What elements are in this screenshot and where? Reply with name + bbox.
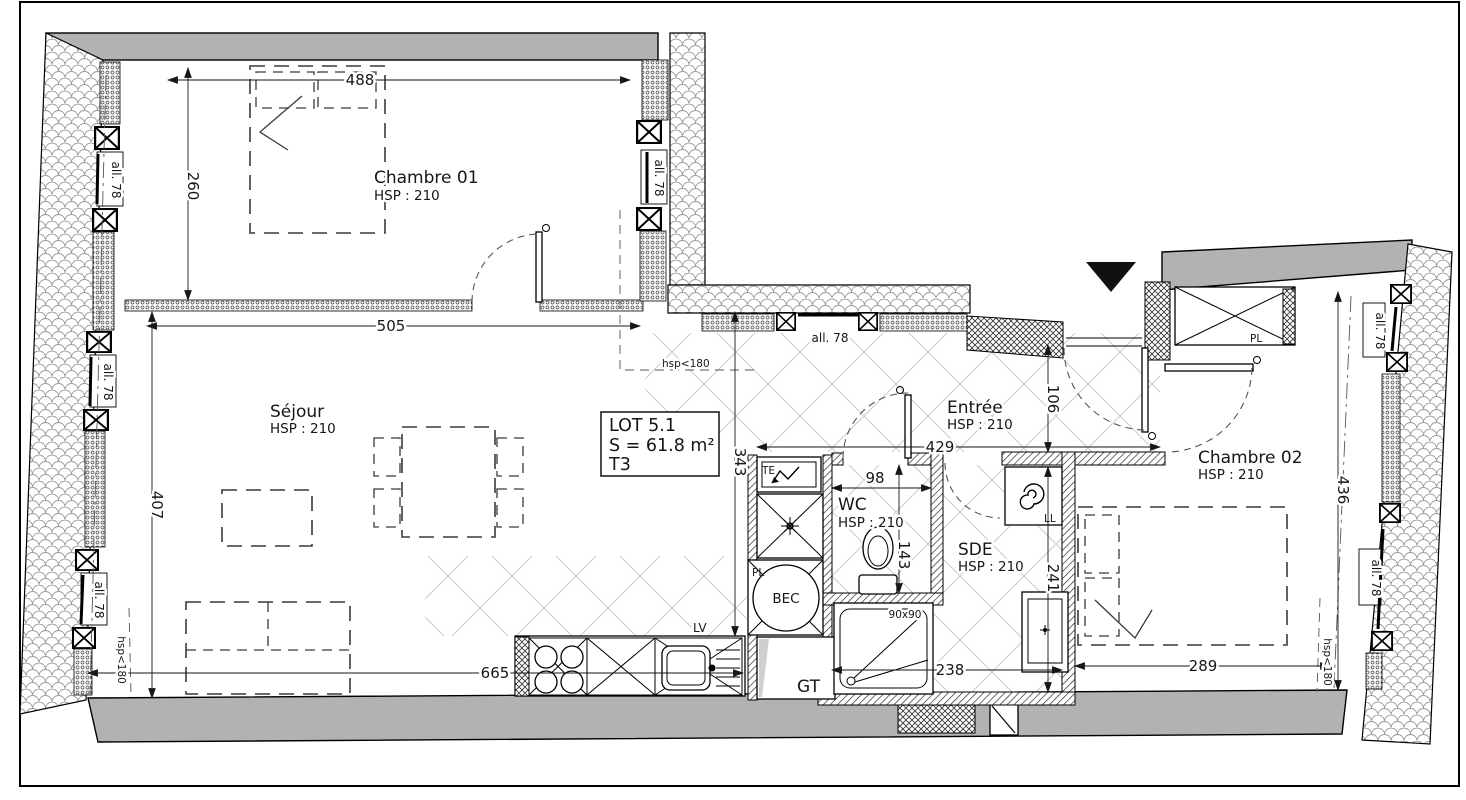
pillow: [1085, 515, 1119, 573]
kitchen-end-cap: [515, 637, 529, 696]
room-name-sde: SDE: [958, 540, 993, 560]
kitchen-counter: [515, 636, 745, 696]
lot-type: T3: [608, 455, 631, 475]
dim-sejour-width: 505: [377, 317, 406, 335]
room-hsp-sejour: HSP : 210: [270, 421, 336, 437]
window-jamb-icon: [1372, 632, 1392, 650]
door-chambre01: [472, 225, 550, 303]
coffee-table: [222, 490, 312, 546]
bed-chambre01: [250, 66, 385, 233]
dining-table: [374, 427, 523, 537]
sde-north-wall: [1002, 452, 1165, 465]
dim-sejour-interior: 343: [731, 448, 749, 477]
exterior-wall-notch-horizontal: [668, 285, 970, 313]
label-hsp180: hsp<180: [662, 358, 710, 370]
label-hsp180: hsp<180: [115, 636, 127, 684]
window-allege-label: all. 78: [92, 582, 106, 619]
party-wall-bottom: [88, 690, 1347, 742]
door-leaf: [536, 232, 542, 302]
door-leaf: [1142, 348, 1148, 432]
dim-chambre02-depth: 436: [1334, 476, 1352, 505]
room-hsp-wc: HSP : 210: [838, 515, 904, 531]
door-leaf: [905, 395, 911, 458]
room-hsp-sde: HSP : 210: [958, 559, 1024, 575]
chair: [497, 489, 523, 527]
label-bec: BEC: [772, 591, 799, 607]
exterior-wall-notch-vertical: [670, 33, 705, 285]
door-chambre02: [1165, 357, 1261, 453]
wall-chambre01-sejour: [125, 300, 472, 311]
wc-top-wall-stub-left: [832, 453, 843, 465]
room-name-entree: Entrée: [947, 398, 1003, 418]
window-allege-label: all. 78: [812, 331, 849, 345]
door-handle-icon: [543, 225, 550, 232]
room-name-wc: WC: [838, 495, 867, 515]
blanket-fold: [260, 96, 302, 150]
label-pl: PL: [752, 567, 764, 579]
dim-sejour-depth: 407: [148, 491, 166, 520]
party-wall-top-right: [1162, 240, 1412, 290]
wall-chambre01-east-lower: [640, 231, 666, 301]
room-hsp-entree: HSP : 210: [947, 417, 1013, 433]
label-hsp180: hsp<180: [1321, 638, 1333, 686]
window-allege-label: all. 78: [652, 160, 666, 197]
dim-entree-width: 429: [926, 438, 955, 456]
window-jamb-icon: [859, 313, 877, 330]
label-gt: GT: [797, 677, 821, 697]
vent-shaft-box: [757, 494, 823, 558]
room-name-sejour: Séjour: [270, 402, 324, 422]
closet-chambre02: [1175, 287, 1295, 345]
dim-sde-depth: 241: [1044, 564, 1062, 593]
wall-chambre01-east-upper: [642, 60, 668, 120]
label-lv: LV: [693, 621, 707, 635]
label-ll: LL: [1044, 513, 1056, 525]
dim-sde-width: 238: [936, 661, 965, 679]
lot-info-box: LOT 5.1 S = 61.8 m² T3: [601, 412, 719, 476]
sofa: [186, 602, 350, 694]
window-jamb-icon: [95, 127, 119, 149]
wc-east-wall: [931, 453, 943, 605]
window-jamb-icon: [777, 313, 795, 330]
window-jamb-icon: [84, 410, 108, 430]
chair: [374, 438, 400, 476]
door-leaf: [1165, 364, 1253, 371]
room-hsp-chambre01: HSP : 210: [374, 188, 440, 204]
window-jamb-icon: [1380, 504, 1400, 522]
room-name-chambre01: Chambre 01: [374, 168, 479, 188]
closet-end-cap: [1283, 289, 1295, 344]
window-jamb-icon: [1391, 285, 1411, 303]
entrance-arrow-icon: [1086, 262, 1136, 292]
bed-chambre02: [1078, 507, 1287, 645]
blanket-fold: [1095, 600, 1152, 638]
window-jamb-icon: [637, 208, 661, 230]
window-jamb-icon: [93, 209, 117, 231]
room-name-chambre02: Chambre 02: [1198, 448, 1303, 468]
window-jamb-icon: [76, 550, 98, 570]
window-allege-label: all. 78: [1373, 313, 1387, 350]
dim-entree-depth: 106: [1044, 385, 1062, 414]
entry-wall-step: [967, 316, 1063, 358]
floor-plan-svg: all. 78 all. 78 all. 78 all. 78 all. 78 …: [0, 0, 1466, 800]
party-wall-top: [46, 33, 658, 60]
dim-chambre01-depth: 260: [184, 172, 202, 201]
washbasin-icon: [1022, 592, 1068, 672]
pillow: [256, 72, 314, 108]
label-shower-size: 90x90: [889, 609, 922, 621]
chair: [497, 438, 523, 476]
window-jamb-icon: [1387, 353, 1407, 371]
floor-plan-sheet: all. 78 all. 78 all. 78 all. 78 all. 78 …: [0, 0, 1466, 800]
window-allege-label: all. 78: [109, 162, 123, 199]
label-te: TE: [761, 465, 775, 477]
dim-wc-width: 98: [865, 469, 884, 487]
dim-chambre02-width: 289: [1189, 657, 1218, 675]
window-allege-label: all. 78: [1369, 560, 1383, 597]
dim-chambre01-width: 488: [346, 71, 375, 89]
room-hsp-chambre02: HSP : 210: [1198, 467, 1264, 483]
entry-door-pier: [1145, 282, 1170, 360]
lot-number: LOT 5.1: [609, 416, 676, 436]
chair: [374, 489, 400, 527]
door-handle-icon: [1254, 357, 1261, 364]
window-jamb-icon: [637, 121, 661, 143]
lot-surface: S = 61.8 m²: [609, 436, 715, 456]
wall-chambre01-sejour-2: [540, 300, 643, 311]
dim-kitchen-width: 665: [481, 664, 510, 682]
dim-wc-depth: 143: [895, 541, 913, 570]
gt-duct-box: [757, 637, 835, 699]
bottom-band-duct-box: [990, 704, 1018, 735]
window-allege-label: all. 78: [101, 364, 115, 401]
label-closet-pl: PL: [1250, 333, 1262, 345]
